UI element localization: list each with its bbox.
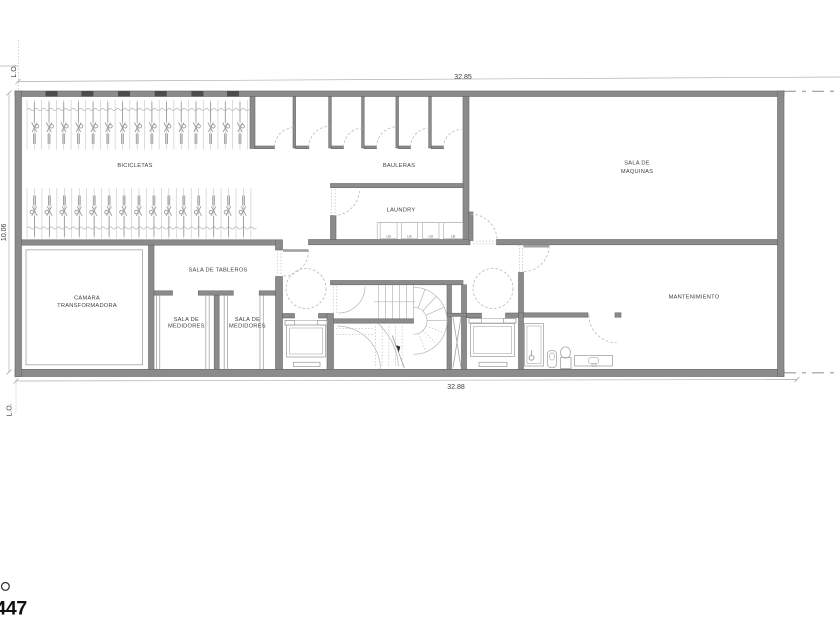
svg-text:10.06: 10.06 — [1, 223, 8, 241]
svg-text:MAQUINAS: MAQUINAS — [621, 169, 653, 175]
svg-text:LB: LB — [429, 234, 434, 238]
svg-text:BAULERAS: BAULERAS — [383, 163, 415, 169]
svg-text:MANTENIMIENTO: MANTENIMIENTO — [669, 294, 720, 300]
svg-text:LAUNDRY: LAUNDRY — [387, 207, 416, 213]
svg-text:BICICLETAS: BICICLETAS — [117, 163, 152, 169]
svg-text:32.85: 32.85 — [454, 74, 472, 81]
svg-text:LB: LB — [451, 234, 456, 238]
svg-text:MEDIDORES: MEDIDORES — [168, 324, 205, 330]
svg-text:CAMARA: CAMARA — [74, 296, 100, 302]
svg-text:447: 447 — [0, 598, 27, 620]
svg-text:SALA DE: SALA DE — [235, 317, 260, 323]
svg-text:SALA DE TABLEROS: SALA DE TABLEROS — [188, 268, 247, 274]
svg-text:SALA DE: SALA DE — [174, 317, 199, 323]
svg-text:32.88: 32.88 — [447, 384, 465, 391]
svg-text:LB: LB — [386, 234, 391, 238]
svg-text:L.O.: L.O. — [7, 403, 14, 416]
svg-text:SALA DE: SALA DE — [624, 161, 649, 167]
svg-text:TRANSFORMADORA: TRANSFORMADORA — [57, 303, 117, 309]
svg-text:LB: LB — [407, 234, 412, 238]
svg-text:MEDIDORES: MEDIDORES — [229, 324, 266, 330]
